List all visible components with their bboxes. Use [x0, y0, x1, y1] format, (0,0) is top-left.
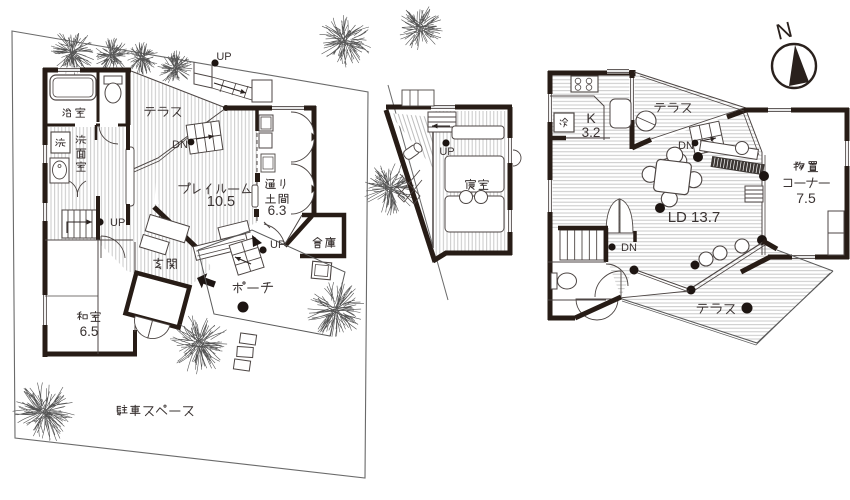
svg-text:UP: UP [216, 51, 231, 63]
svg-text:7.5: 7.5 [796, 190, 816, 206]
svg-text:10.5: 10.5 [207, 194, 235, 210]
svg-text:UP: UP [110, 217, 125, 229]
svg-text:6.5: 6.5 [80, 324, 99, 339]
svg-text:UP: UP [270, 239, 285, 251]
svg-text:DN: DN [172, 139, 188, 151]
svg-text:K: K [586, 110, 596, 126]
svg-text:DN: DN [621, 242, 637, 254]
svg-text:LD 13.7: LD 13.7 [668, 209, 721, 226]
svg-text:6.3: 6.3 [268, 203, 287, 218]
